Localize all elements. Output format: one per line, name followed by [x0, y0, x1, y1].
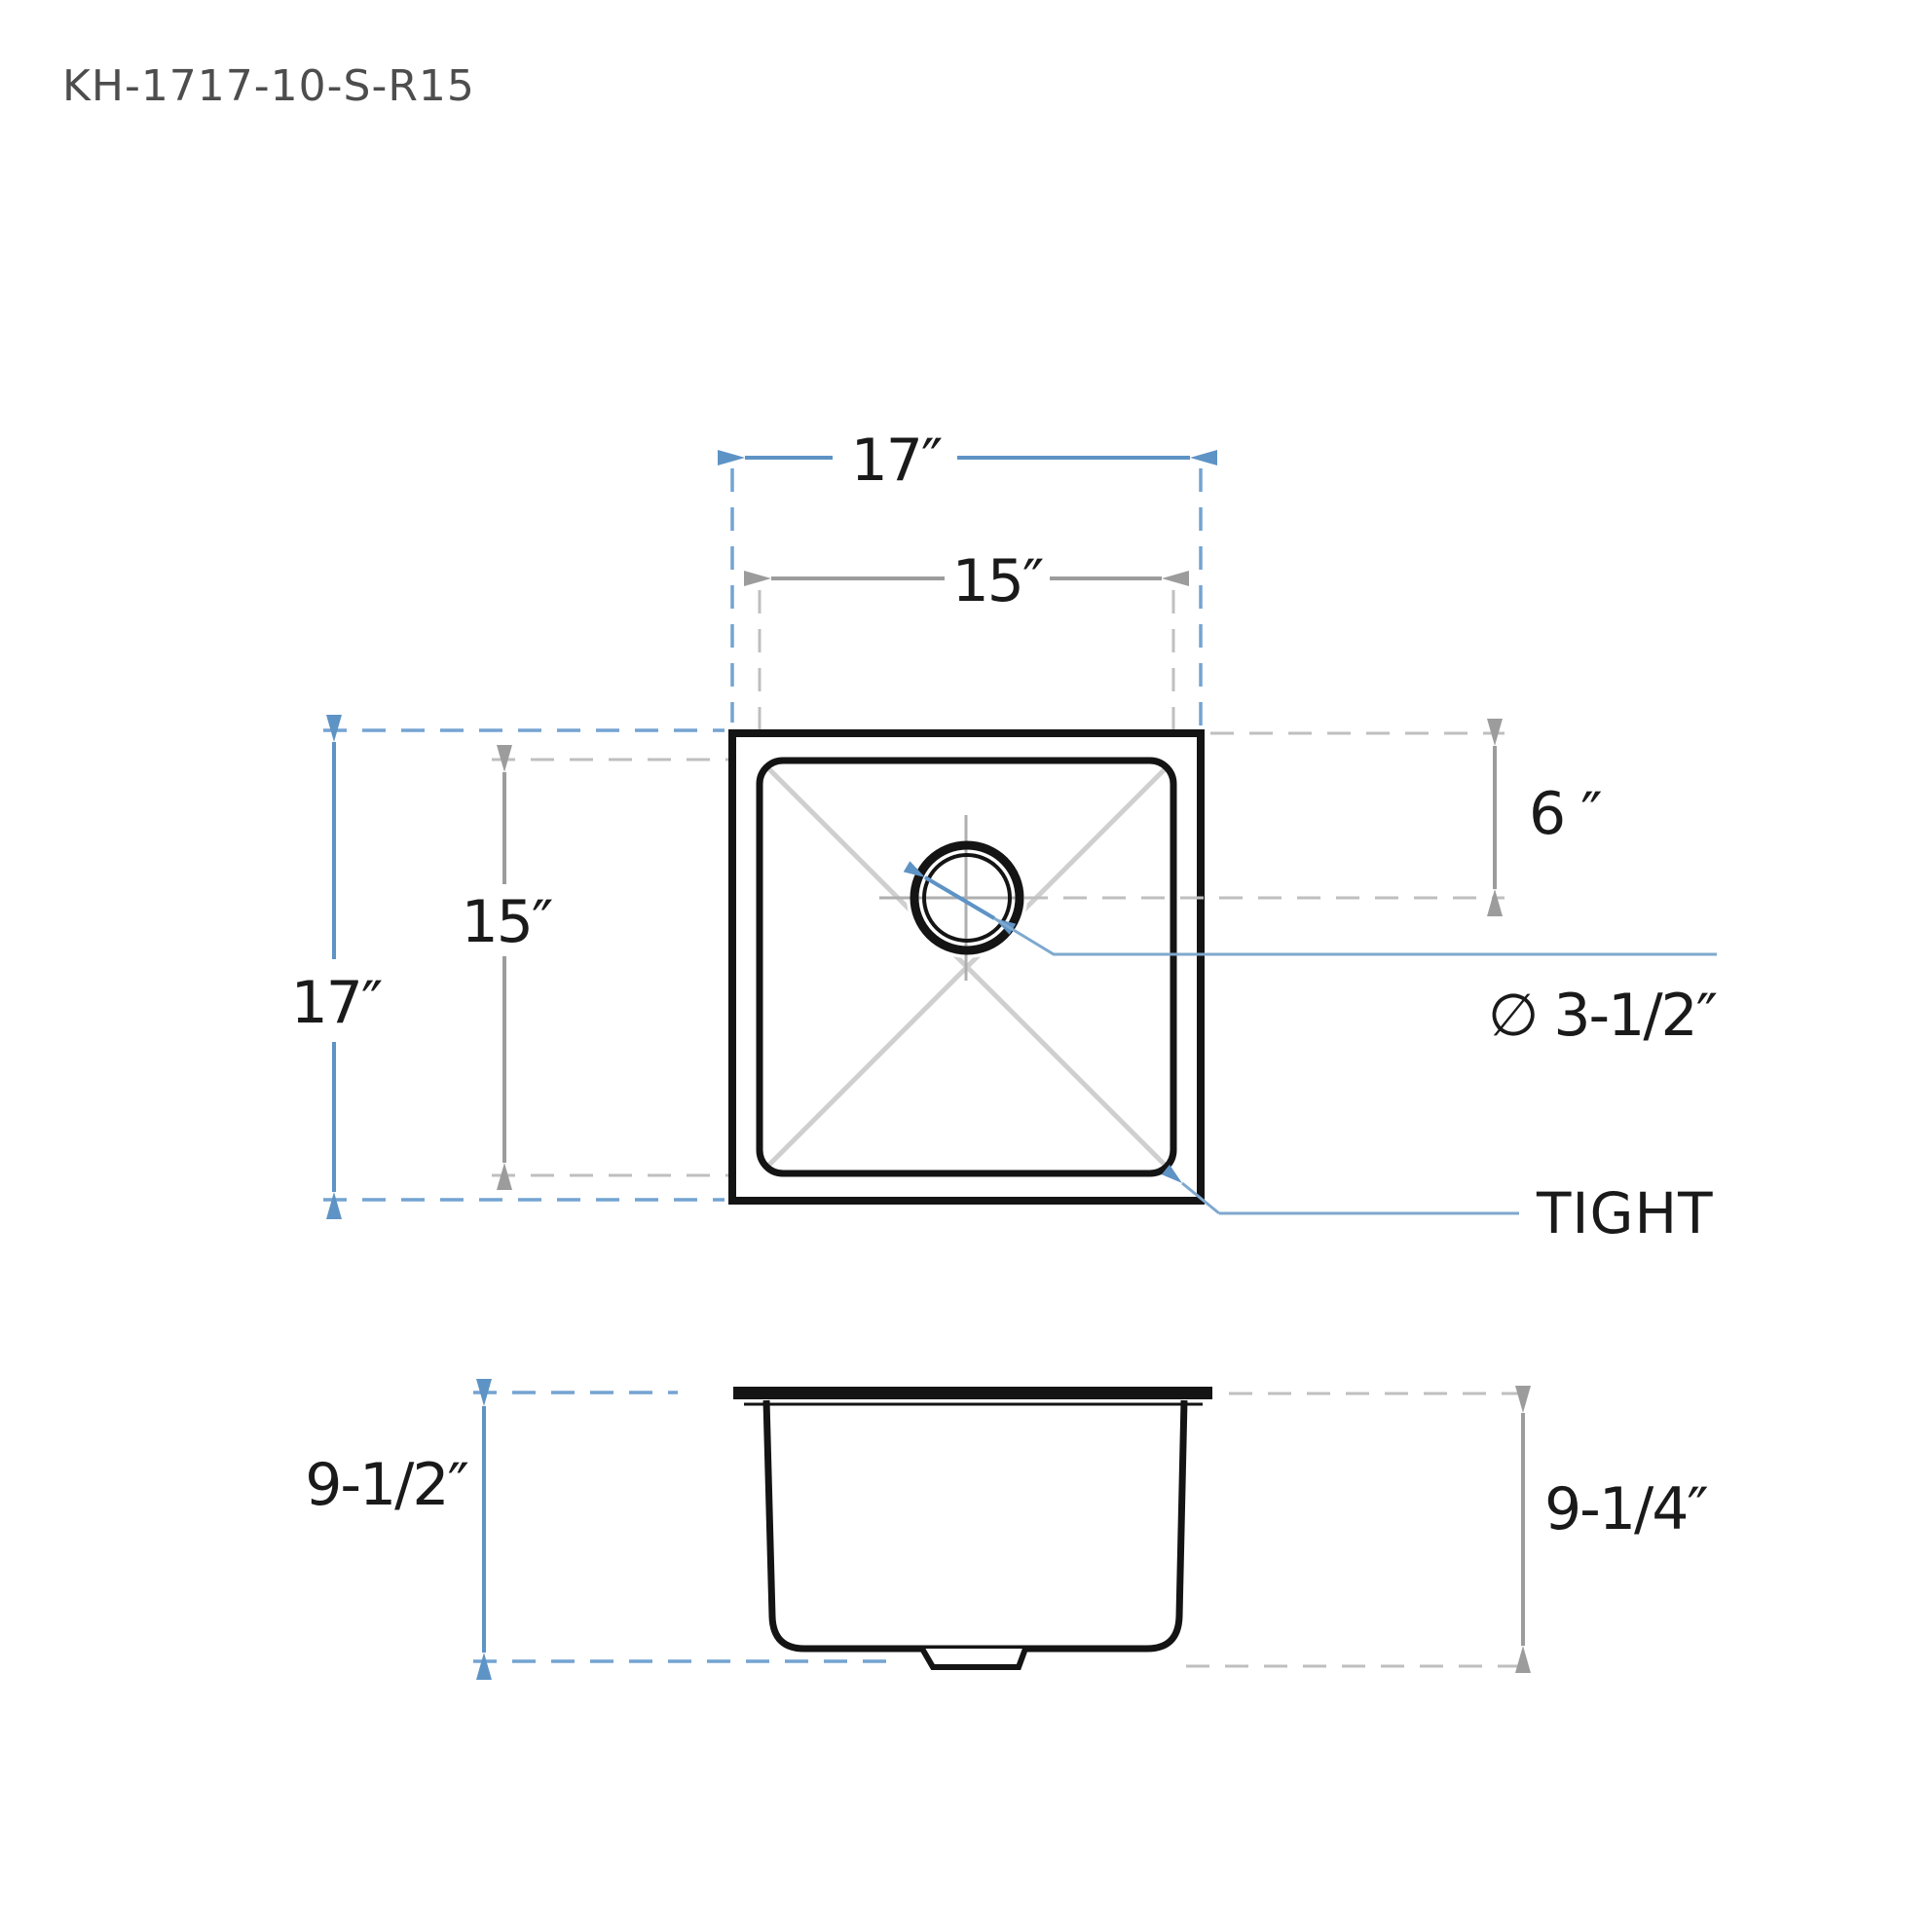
- dim-inner-height-label: 15″: [462, 888, 552, 956]
- top-view: 17″ 15″ 17″ 15″: [291, 427, 1717, 1246]
- dim-bowl-depth: 9-1/4″: [1523, 1413, 1707, 1646]
- side-bowl-outline: [766, 1400, 1184, 1649]
- dim-drain-offset: 6 ″: [1495, 746, 1601, 889]
- dim-overall-depth: 9-1/2″: [305, 1406, 484, 1653]
- dim-inner-width-label: 15″: [952, 547, 1043, 615]
- dim-inner-height: 15″: [462, 772, 552, 1163]
- dim-outer-height-label: 17″: [291, 969, 382, 1037]
- dim-inner-width: 15″: [771, 547, 1162, 615]
- sink-spec-drawing: KH-1717-10-S-R15: [0, 0, 1932, 1932]
- corner-radius-label: TIGHT: [1536, 1180, 1714, 1246]
- corner-radius-callout: TIGHT: [1182, 1180, 1714, 1246]
- dim-drain-offset-label: 6 ″: [1529, 780, 1601, 848]
- dim-outer-width: 17″: [745, 427, 1190, 495]
- dim-outer-height: 17″: [291, 742, 382, 1192]
- side-view: 9-1/2″ 9-1/4″: [305, 1387, 1707, 1667]
- side-drain-stub: [922, 1649, 1025, 1667]
- dim-overall-depth-label: 9-1/2″: [305, 1451, 467, 1519]
- drawing-title: KH-1717-10-S-R15: [62, 61, 475, 111]
- dim-bowl-depth-label: 9-1/4″: [1544, 1475, 1707, 1543]
- drawing-svg: KH-1717-10-S-R15: [0, 0, 1932, 1932]
- side-rim-bar: [733, 1387, 1212, 1399]
- dim-drain-diameter-label: ∅ 3-1/2″: [1488, 982, 1717, 1050]
- dim-outer-width-label: 17″: [851, 427, 942, 495]
- side-gray-extension-lines: [1186, 1393, 1537, 1666]
